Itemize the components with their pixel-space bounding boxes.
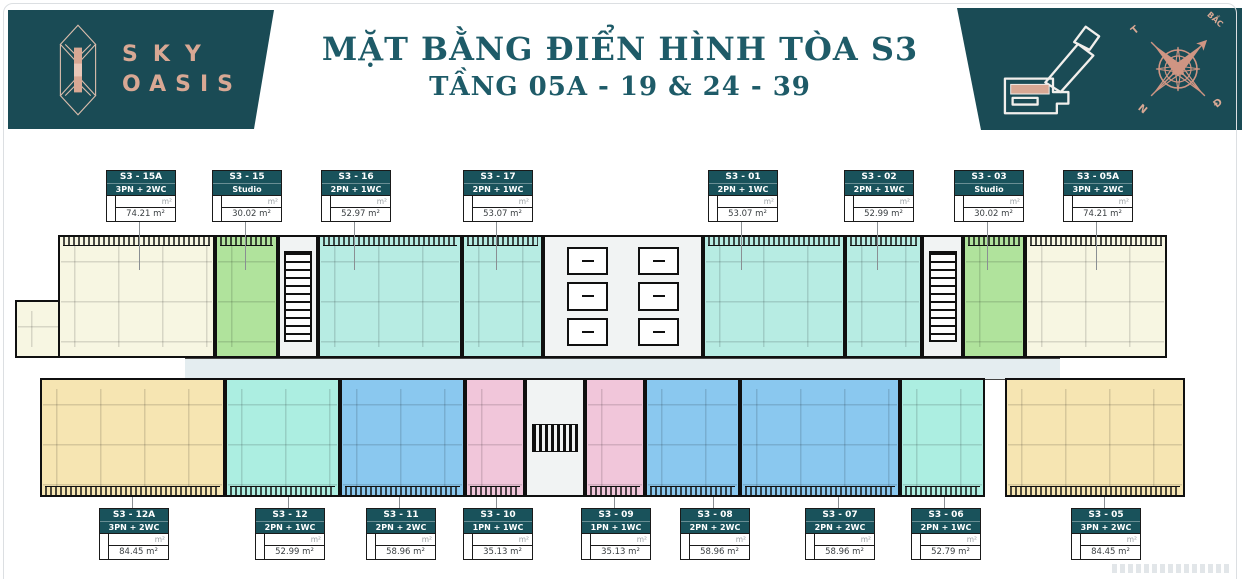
page-title: MẶT BẰNG ĐIỂN HÌNH TÒA S3 — [320, 30, 920, 68]
leader-line — [944, 497, 945, 508]
unit-area-s3-10 — [465, 378, 525, 497]
leader-line — [288, 497, 289, 508]
area-row-value: 58.96 m² — [815, 546, 874, 559]
unit-card-s3-07: S3 - 07 2PN + 2WC m² 58.96 m² — [805, 508, 875, 560]
area-table-side — [709, 196, 718, 221]
unit-card-s3-06: S3 - 06 2PN + 1WC m² 52.79 m² — [911, 508, 981, 560]
area-table-side — [100, 534, 109, 559]
elevator-core — [543, 235, 703, 358]
unit-code: S3 - 09 — [582, 509, 650, 521]
area-row-unit: m² — [331, 196, 390, 208]
unit-area-table: m² 52.99 m² — [845, 195, 913, 221]
unit-area-table: m² 30.02 m² — [213, 195, 281, 221]
area-row-value: 53.07 m² — [473, 208, 532, 221]
area-table-side — [322, 196, 331, 221]
unit-type: 2PN + 1WC — [256, 521, 324, 533]
leader-line — [245, 218, 246, 270]
unit-card-s3-03: S3 - 03 Studio m² 30.02 m² — [954, 170, 1024, 222]
unit-area-table: m² 53.07 m² — [709, 195, 777, 221]
area-table-side — [955, 196, 964, 221]
unit-code: S3 - 07 — [806, 509, 874, 521]
unit-card-s3-10: S3 - 10 1PN + 1WC m² 35.13 m² — [463, 508, 533, 560]
area-row-value: 52.79 m² — [921, 546, 980, 559]
leader-line — [1096, 218, 1097, 270]
unit-type: 2PN + 2WC — [681, 521, 749, 533]
unit-code: S3 - 03 — [955, 171, 1023, 183]
unit-area-s3-11 — [340, 378, 465, 497]
unit-card-s3-12: S3 - 12 2PN + 1WC m² 52.99 m² — [255, 508, 325, 560]
leader-line — [614, 497, 615, 508]
leader-line — [713, 497, 714, 508]
unit-area-table: m² 52.79 m² — [912, 533, 980, 559]
unit-card-s3-02: S3 - 02 2PN + 1WC m² 52.99 m² — [844, 170, 914, 222]
stair-core-right — [922, 235, 963, 358]
unit-card-s3-09: S3 - 09 1PN + 1WC m² 35.13 m² — [581, 508, 651, 560]
leader-line — [1104, 497, 1105, 508]
unit-area-table: m² 74.21 m² — [107, 195, 175, 221]
unit-area-s3-09 — [585, 378, 645, 497]
unit-area-table: m² 52.97 m² — [322, 195, 390, 221]
unit-code: S3 - 02 — [845, 171, 913, 183]
unit-card-s3-11: S3 - 11 2PN + 2WC m² 58.96 m² — [366, 508, 436, 560]
unit-card-s3-15a: S3 - 15A 3PN + 2WC m² 74.21 m² — [106, 170, 176, 222]
unit-type: 2PN + 2WC — [806, 521, 874, 533]
unit-area-table: m² 58.96 m² — [806, 533, 874, 559]
area-row-value: 52.99 m² — [265, 546, 324, 559]
watermark — [1112, 564, 1230, 573]
unit-area-s3-05 — [1005, 378, 1185, 497]
unit-type: 2PN + 1WC — [845, 183, 913, 195]
unit-type: 1PN + 1WC — [464, 521, 532, 533]
unit-type: 3PN + 2WC — [1064, 183, 1132, 195]
leader-line — [741, 218, 742, 270]
unit-code: S3 - 10 — [464, 509, 532, 521]
leader-line — [496, 218, 497, 270]
brand-line-2: OASIS — [122, 70, 242, 100]
unit-type: 2PN + 1WC — [464, 183, 532, 195]
site-plan-icon — [994, 19, 1112, 119]
leader-line — [132, 497, 133, 508]
elevator-shaft-icon — [638, 318, 679, 346]
unit-code: S3 - 08 — [681, 509, 749, 521]
area-table-side — [464, 196, 473, 221]
unit-type: 2PN + 1WC — [912, 521, 980, 533]
stairs-icon — [929, 251, 957, 342]
area-row-unit: m² — [1081, 534, 1140, 546]
unit-area-s3-01 — [703, 235, 845, 358]
unit-area-s3-12a — [40, 378, 225, 497]
unit-area-s3-03 — [963, 235, 1025, 358]
elevator-shaft-icon — [638, 247, 679, 275]
unit-card-s3-08: S3 - 08 2PN + 2WC m² 58.96 m² — [680, 508, 750, 560]
unit-area-table: m² 35.13 m² — [582, 533, 650, 559]
leader-line — [399, 497, 400, 508]
unit-area-s3-15a — [58, 235, 215, 358]
unit-code: S3 - 06 — [912, 509, 980, 521]
unit-type: 1PN + 1WC — [582, 521, 650, 533]
sky-oasis-logo-icon — [54, 21, 102, 119]
unit-area-table: m² 30.02 m² — [955, 195, 1023, 221]
unit-type: Studio — [213, 183, 281, 195]
area-row-value: 52.99 m² — [854, 208, 913, 221]
unit-card-s3-05a: S3 - 05A 3PN + 2WC m² 74.21 m² — [1063, 170, 1133, 222]
unit-area-s3-15a-wing — [15, 300, 61, 358]
unit-code: S3 - 11 — [367, 509, 435, 521]
unit-area-table: m² 58.96 m² — [367, 533, 435, 559]
area-row-value: 30.02 m² — [222, 208, 281, 221]
area-row-value: 58.96 m² — [690, 546, 749, 559]
elevator-shafts — [567, 247, 679, 346]
unit-area-table: m² 84.45 m² — [1072, 533, 1140, 559]
unit-area-s3-07 — [740, 378, 900, 497]
unit-code: S3 - 16 — [322, 171, 390, 183]
area-table-side — [464, 534, 473, 559]
area-table-side — [681, 534, 690, 559]
unit-card-s3-01: S3 - 01 2PN + 1WC m² 53.07 m² — [708, 170, 778, 222]
unit-type: 3PN + 2WC — [100, 521, 168, 533]
unit-type: Studio — [955, 183, 1023, 195]
area-row-unit: m² — [473, 196, 532, 208]
area-row-value: 74.21 m² — [1073, 208, 1132, 221]
unit-area-s3-08 — [645, 378, 740, 497]
unit-card-s3-16: S3 - 16 2PN + 1WC m² 52.97 m² — [321, 170, 391, 222]
unit-area-table: m² 53.07 m² — [464, 195, 532, 221]
unit-card-s3-17: S3 - 17 2PN + 1WC m² 53.07 m² — [463, 170, 533, 222]
unit-code: S3 - 17 — [464, 171, 532, 183]
leader-line — [987, 218, 988, 270]
area-row-value: 52.97 m² — [331, 208, 390, 221]
leader-line — [354, 218, 355, 270]
area-table-side — [256, 534, 265, 559]
area-table-side — [582, 534, 591, 559]
unit-type: 2PN + 1WC — [709, 183, 777, 195]
area-row-value: 58.96 m² — [376, 546, 435, 559]
area-row-value: 84.45 m² — [109, 546, 168, 559]
leader-line — [838, 497, 839, 508]
area-row-value: 84.45 m² — [1081, 546, 1140, 559]
area-row-unit: m² — [222, 196, 281, 208]
floor-plan-page: SKY OASIS MẶT BẰNG ĐIỂN HÌNH TÒA S3 TẦNG… — [0, 0, 1242, 579]
area-table-side — [1064, 196, 1073, 221]
unit-card-s3-05: S3 - 05 3PN + 2WC m² 84.45 m² — [1071, 508, 1141, 560]
elevator-shaft-icon — [638, 282, 679, 310]
unit-code: S3 - 15A — [107, 171, 175, 183]
unit-area-s3-06 — [900, 378, 985, 497]
unit-type: 2PN + 1WC — [322, 183, 390, 195]
area-row-unit: m² — [376, 534, 435, 546]
unit-card-s3-12a: S3 - 12A 3PN + 2WC m² 84.45 m² — [99, 508, 169, 560]
area-row-unit: m² — [265, 534, 324, 546]
unit-area-table: m² 84.45 m² — [100, 533, 168, 559]
area-table-side — [806, 534, 815, 559]
unit-type: 2PN + 2WC — [367, 521, 435, 533]
unit-area-s3-12 — [225, 378, 340, 497]
unit-area-s3-16 — [318, 235, 462, 358]
unit-code: S3 - 01 — [709, 171, 777, 183]
area-row-unit: m² — [718, 196, 777, 208]
unit-type: 3PN + 2WC — [107, 183, 175, 195]
area-table-side — [367, 534, 376, 559]
area-row-unit: m² — [690, 534, 749, 546]
elevator-shaft-icon — [567, 282, 608, 310]
area-table-side — [1072, 534, 1081, 559]
area-row-unit: m² — [854, 196, 913, 208]
unit-area-s3-15 — [215, 235, 278, 358]
area-row-value: 35.13 m² — [591, 546, 650, 559]
central-corridor — [185, 358, 1060, 380]
stairs-icon — [284, 251, 312, 342]
brand-wordmark: SKY OASIS — [122, 40, 242, 99]
area-row-unit: m² — [473, 534, 532, 546]
brand-line-1: SKY — [122, 40, 242, 70]
area-row-unit: m² — [815, 534, 874, 546]
area-row-value: 35.13 m² — [473, 546, 532, 559]
compass-icon: BẮC T N Đ — [1126, 13, 1230, 125]
area-row-value: 53.07 m² — [718, 208, 777, 221]
unit-area-table: m² 35.13 m² — [464, 533, 532, 559]
unit-code: S3 - 05A — [1064, 171, 1132, 183]
area-table-side — [107, 196, 116, 221]
unit-code: S3 - 05 — [1072, 509, 1140, 521]
unit-code: S3 - 12A — [100, 509, 168, 521]
unit-type: 3PN + 2WC — [1072, 521, 1140, 533]
brand-banner: SKY OASIS — [8, 10, 274, 129]
area-row-unit: m² — [964, 196, 1023, 208]
entrance-lobby — [525, 378, 585, 497]
leader-line — [877, 218, 878, 270]
area-row-value: 74.21 m² — [116, 208, 175, 221]
area-row-unit: m² — [116, 196, 175, 208]
area-row-unit: m² — [109, 534, 168, 546]
area-table-side — [213, 196, 222, 221]
unit-area-table: m² 74.21 m² — [1064, 195, 1132, 221]
elevator-shaft-icon — [567, 247, 608, 275]
area-table-side — [845, 196, 854, 221]
page-subtitle: TẦNG 05A - 19 & 24 - 39 — [320, 72, 920, 102]
unit-area-table: m² 52.99 m² — [256, 533, 324, 559]
unit-code: S3 - 15 — [213, 171, 281, 183]
leader-line — [496, 497, 497, 508]
unit-area-s3-02 — [845, 235, 922, 358]
stair-core-left — [278, 235, 318, 358]
elevator-shaft-icon — [567, 318, 608, 346]
unit-code: S3 - 12 — [256, 509, 324, 521]
compass-north-label: BẮC — [1205, 10, 1225, 29]
locator-banner: BẮC T N Đ — [957, 8, 1242, 130]
unit-card-s3-15: S3 - 15 Studio m² 30.02 m² — [212, 170, 282, 222]
unit-area-s3-17 — [462, 235, 543, 358]
leader-line — [139, 218, 140, 270]
unit-area-table: m² 58.96 m² — [681, 533, 749, 559]
area-row-unit: m² — [591, 534, 650, 546]
area-table-side — [912, 534, 921, 559]
area-row-unit: m² — [1073, 196, 1132, 208]
area-row-value: 30.02 m² — [964, 208, 1023, 221]
title-block: MẶT BẰNG ĐIỂN HÌNH TÒA S3 TẦNG 05A - 19 … — [320, 30, 920, 102]
area-row-unit: m² — [921, 534, 980, 546]
